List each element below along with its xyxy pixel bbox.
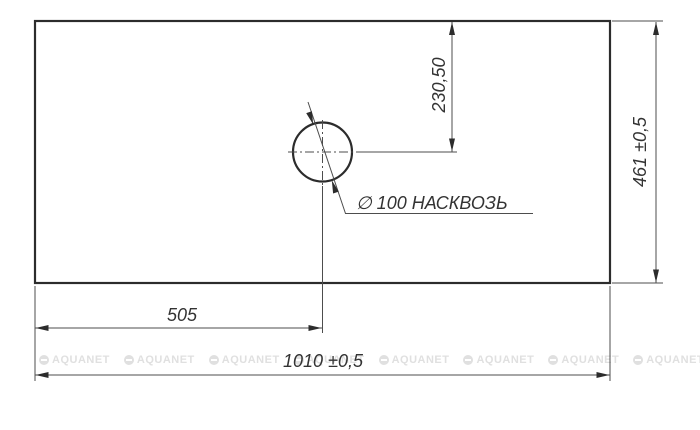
arrowhead	[36, 325, 49, 331]
dim-text-panel-depth: 461 ±0,5	[631, 117, 649, 187]
arrowhead	[449, 22, 455, 35]
arrowhead	[309, 325, 322, 331]
technical-drawing-canvas: AQUANET AQUANET AQUANET AQUANET AQUANET …	[0, 0, 700, 430]
dim-text-hole-offset-vertical: 230,50	[430, 57, 448, 112]
arrowhead	[653, 270, 659, 283]
arrowhead	[449, 139, 455, 152]
hole-callout-text: ∅ 100 НАСКВОЗЬ	[356, 194, 508, 212]
dim-text-hole-offset-horizontal: 505	[167, 306, 197, 324]
arrowhead	[597, 372, 610, 378]
arrowhead	[653, 22, 659, 35]
dim-text-panel-width: 1010 ±0,5	[283, 352, 363, 370]
arrowhead	[36, 372, 49, 378]
